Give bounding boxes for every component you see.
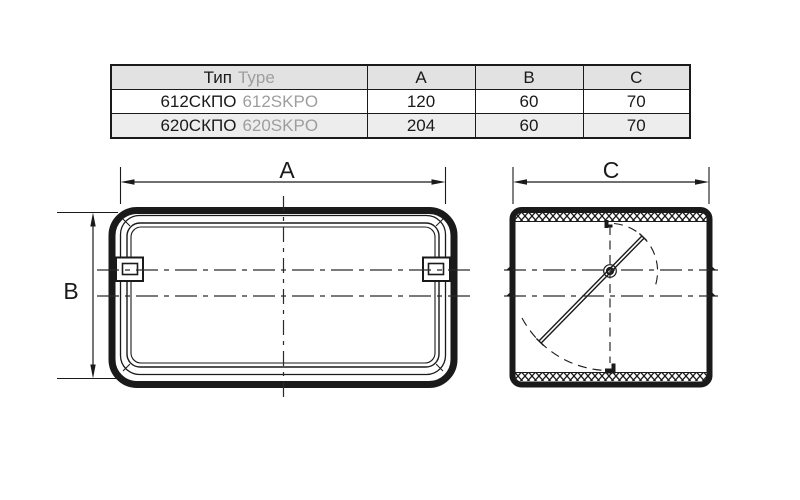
header-dim-b: B bbox=[475, 65, 583, 90]
header-dim-a: A bbox=[367, 65, 475, 90]
cell-type: 612СКПО612SKPO bbox=[111, 90, 367, 114]
hinge-pin-left bbox=[116, 258, 143, 282]
arrowhead-up bbox=[90, 213, 95, 227]
arrowhead-down bbox=[90, 365, 95, 379]
dim-a-label: A bbox=[279, 157, 295, 183]
arrowhead-left bbox=[121, 179, 135, 185]
dimension-c: C bbox=[513, 157, 709, 204]
dim-b-label: B bbox=[63, 278, 78, 304]
damper-blade bbox=[536, 234, 646, 346]
seal-hatch-bottom bbox=[516, 373, 707, 382]
type-ru: 620СКПО bbox=[160, 116, 236, 135]
table-header-row: ТипType A B C bbox=[111, 65, 690, 90]
front-view-drawing: A B bbox=[57, 157, 476, 398]
cell-dim-b: 60 bbox=[475, 114, 583, 139]
dim-c-label: C bbox=[603, 157, 620, 183]
cell-dim-b: 60 bbox=[475, 90, 583, 114]
flap-stopper-bottom bbox=[605, 364, 616, 374]
cell-dim-c: 70 bbox=[583, 114, 690, 139]
spec-table: ТипType A B C 612СКПО612SKPO 120 60 70 6… bbox=[110, 64, 691, 139]
technical-drawing-page: A B bbox=[0, 0, 800, 500]
cell-dim-c: 70 bbox=[583, 90, 690, 114]
header-type-ru: Тип bbox=[204, 68, 232, 87]
header-type-en: Type bbox=[238, 68, 275, 87]
type-en: 620SKPO bbox=[242, 116, 318, 135]
type-ru: 612СКПО bbox=[160, 92, 236, 111]
type-en: 612SKPO bbox=[242, 92, 318, 111]
cell-type: 620СКПО620SKPO bbox=[111, 114, 367, 139]
side-view-drawing: C bbox=[504, 157, 718, 385]
section-body bbox=[513, 210, 710, 385]
arrowhead-right bbox=[695, 179, 709, 185]
header-dim-c: C bbox=[583, 65, 690, 90]
side-view-centerlines bbox=[504, 226, 718, 363]
table-row: 620СКПО620SKPO 204 60 70 bbox=[111, 114, 690, 139]
arrowhead-left bbox=[513, 179, 527, 185]
arrowhead-right bbox=[432, 179, 446, 185]
cell-dim-a: 204 bbox=[367, 114, 475, 139]
hinge-pin-right bbox=[423, 258, 450, 282]
seal-hatch-top bbox=[516, 213, 707, 222]
table-row: 612СКПО612SKPO 120 60 70 bbox=[111, 90, 690, 114]
cell-dim-a: 120 bbox=[367, 90, 475, 114]
header-type: ТипType bbox=[111, 65, 367, 90]
